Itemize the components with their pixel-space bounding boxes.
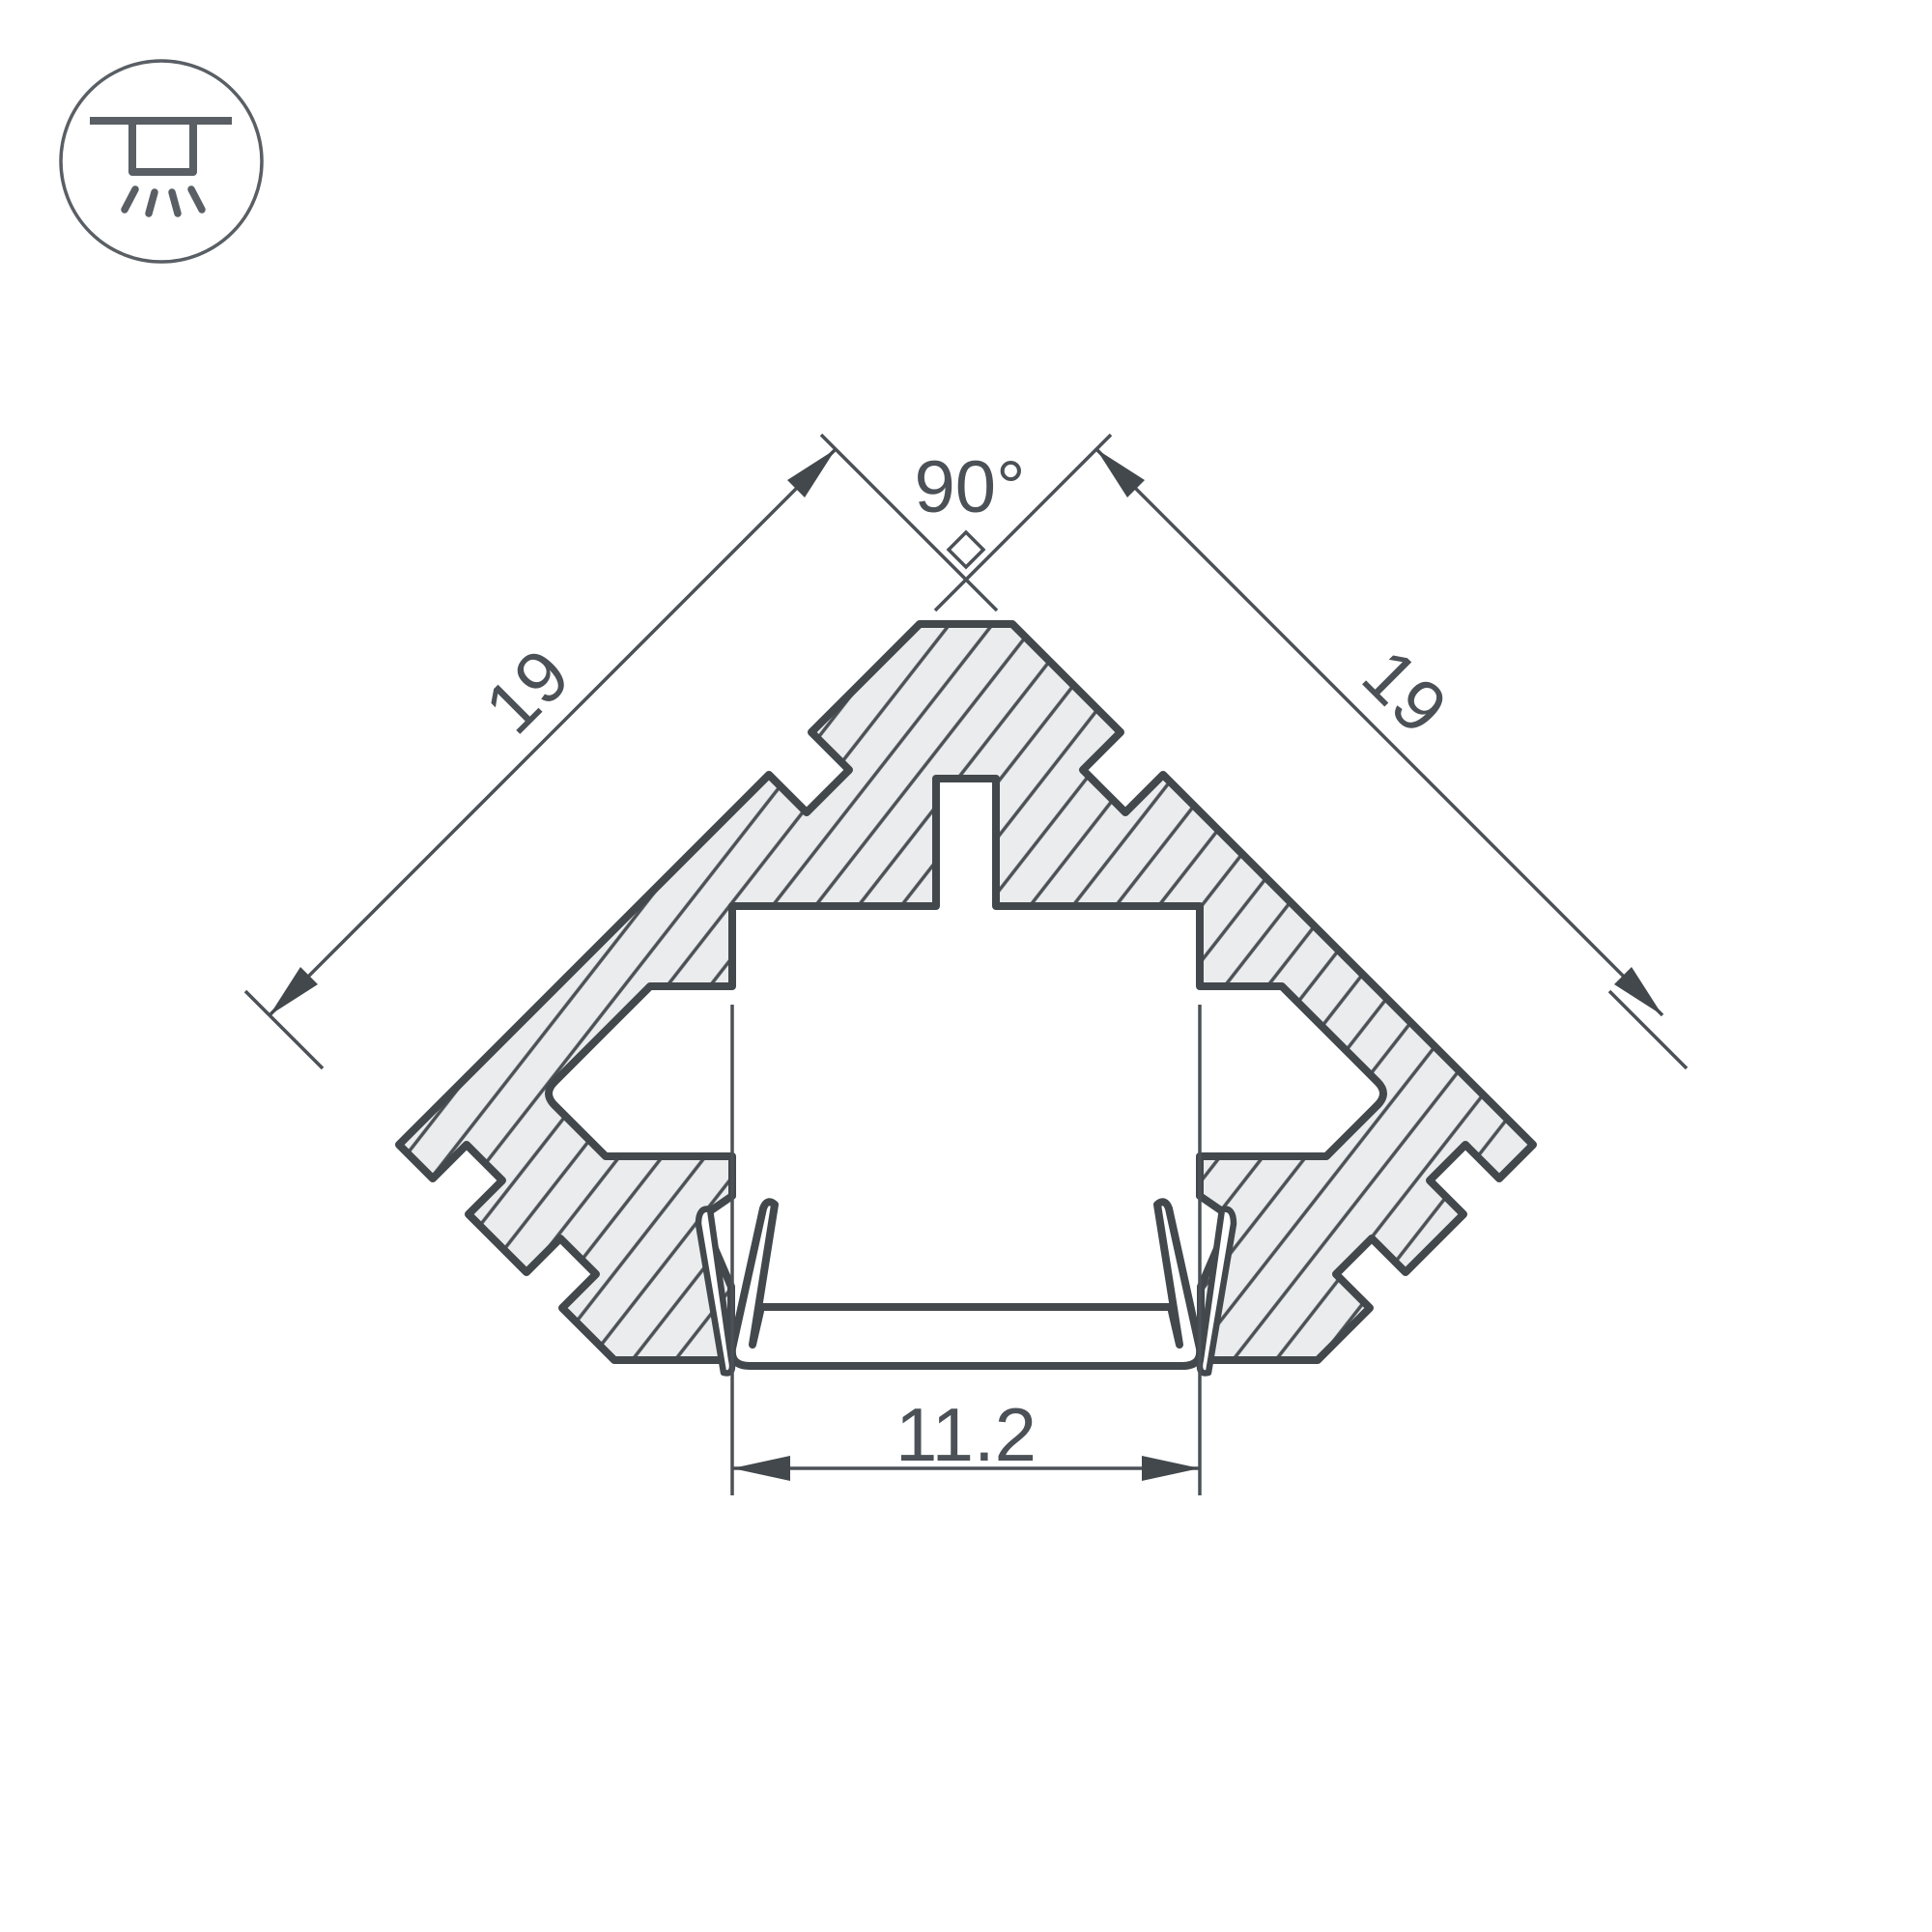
icon-ray-1 [125,189,135,210]
ceiling-light-icon [61,61,262,262]
page: 90° 19 19 11.2 [0,0,1932,1932]
dimension-bottom-width: 11.2 [732,1005,1200,1495]
icon-circle [61,61,262,262]
left-dim-line [270,449,836,1015]
bottom-dim-label: 11.2 [895,1392,1037,1477]
icon-light-rays [125,189,202,213]
dimension-left-19: 19 [245,449,836,1068]
icon-lamp-box [132,119,193,172]
right-dim-label: 19 [1347,634,1463,750]
technical-drawing-svg: 90° 19 19 11.2 [0,0,1932,1932]
icon-ray-3 [172,192,178,213]
right-angle-symbol [949,532,983,567]
bottom-dim-arrow-right [1142,1456,1200,1481]
diffuser-cover [732,1202,1200,1366]
aluminum-body [399,624,1533,1360]
icon-ray-2 [149,192,155,213]
bottom-dim-arrow-left [732,1456,790,1481]
right-dim-line [1096,449,1662,1015]
left-dim-label: 19 [469,634,585,750]
icon-ray-4 [191,189,202,210]
profile-cross-section [399,624,1533,1373]
angle-label: 90° [915,446,1026,528]
dimension-right-19: 19 [1096,449,1687,1068]
dimension-angle: 90° [821,435,1111,611]
